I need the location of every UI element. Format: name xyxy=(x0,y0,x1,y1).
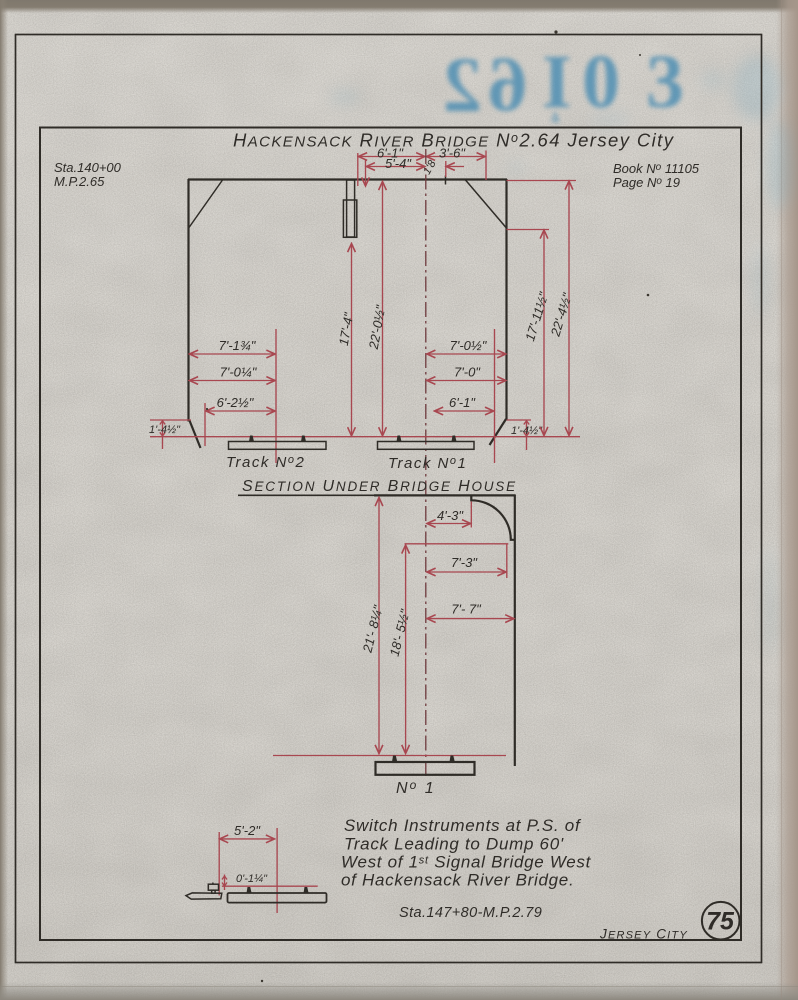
svg-text:7'-0": 7'-0" xyxy=(454,365,481,380)
svg-text:JERSEY CITY: JERSEY CITY xyxy=(599,927,688,942)
svg-text:2: 2 xyxy=(443,41,482,128)
svg-text:7'-3": 7'-3" xyxy=(451,555,478,570)
svg-text:Sta.147+80-M.P.2.79: Sta.147+80-M.P.2.79 xyxy=(399,905,542,921)
svg-text:5'-2": 5'-2" xyxy=(234,823,261,838)
svg-text:SECTION UNDER BRIDGE HOUSE: SECTION UNDER BRIDGE HOUSE xyxy=(242,478,517,495)
svg-text:7'-0¼": 7'-0¼" xyxy=(220,365,258,380)
svg-text:0'-1¼": 0'-1¼" xyxy=(236,873,268,885)
svg-text:4'-3": 4'-3" xyxy=(437,508,464,523)
svg-text:7'-1¾": 7'-1¾" xyxy=(219,338,257,353)
svg-text:6'-1": 6'-1" xyxy=(449,395,476,410)
svg-text:75: 75 xyxy=(706,908,735,936)
svg-text:6'-2½": 6'-2½" xyxy=(217,395,255,410)
svg-text:3'-6": 3'-6" xyxy=(439,146,466,161)
svg-text:6: 6 xyxy=(488,40,527,127)
svg-text:West of 1st Signal Bridge West: West of 1st Signal Bridge West xyxy=(341,853,592,872)
svg-text:Sta.140+00: Sta.140+00 xyxy=(54,160,122,175)
svg-text:of Hackensack River Bridge.: of Hackensack River Bridge. xyxy=(341,871,574,890)
svg-text:7'- 7": 7'- 7" xyxy=(451,602,482,617)
svg-text:M.P.2.65: M.P.2.65 xyxy=(54,174,105,189)
svg-text:3: 3 xyxy=(646,40,684,124)
svg-text:Switch Instruments at P.S. of: Switch Instruments at P.S. of xyxy=(344,816,582,835)
svg-text:Track Leading to Dump 60': Track Leading to Dump 60' xyxy=(344,835,564,854)
svg-text:1'-4½": 1'-4½" xyxy=(511,425,543,437)
svg-text:5'-4": 5'-4" xyxy=(385,156,412,171)
svg-text:1'-4½": 1'-4½" xyxy=(149,424,181,436)
svg-text:Page No 19: Page No 19 xyxy=(613,175,680,190)
svg-text:7'-0½": 7'-0½" xyxy=(450,338,488,353)
svg-text:0: 0 xyxy=(582,40,620,124)
